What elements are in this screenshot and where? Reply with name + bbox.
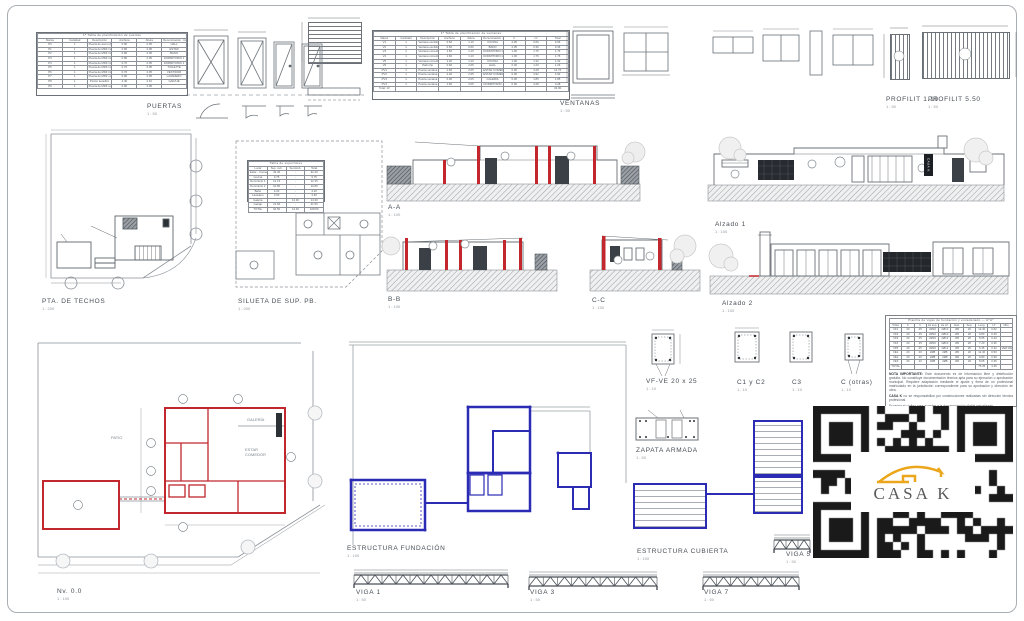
- elevation-2-drawing: [705, 218, 1013, 302]
- section-aa-drawing: [385, 130, 643, 205]
- caption-ventanas: VENTANAS1 : 50: [560, 100, 600, 113]
- foundation-plan-drawing: [343, 333, 633, 547]
- floor-plan-drawing: PATIO GALERÍA ESTAR COMEDOR: [33, 333, 333, 579]
- armado-table-rows: VF120252Ø102Ø10Ø62012.400.62VF220252Ø102…: [890, 328, 1013, 369]
- elevation-1-drawing: [700, 128, 1012, 208]
- column-details-drawing: [640, 326, 880, 378]
- facade-sign: CASA K: [924, 154, 933, 176]
- areas-table-rows: Estar - Comedor32.40-32.40Cocina9.75-9.7…: [249, 171, 324, 212]
- qr-code: CASA K: [813, 406, 1013, 558]
- garage-door-dims: [300, 14, 370, 109]
- note-important: NOTA IMPORTANTE: Este documento es de in…: [889, 372, 1013, 392]
- viga-1-drawing: [350, 568, 512, 590]
- caption-section-cc: C-C1 : 100: [592, 297, 606, 310]
- roof-structure-connector: [705, 493, 753, 495]
- caption-c-otras: C (otras)1 : 10: [841, 379, 873, 392]
- zapata-drawing: [628, 410, 712, 446]
- silhouette-plan-drawing: [228, 131, 390, 299]
- window-fronts-strip: [618, 25, 878, 85]
- puertas-table-rows: P01Puerta de acero (Frentista Básica)0.9…: [38, 43, 187, 89]
- caption-pta-techos: PTA. DE TECHOS1 : 200: [42, 298, 105, 311]
- caption-silueta: SILUETA DE SUP. PB.1 : 200: [238, 298, 317, 311]
- caption-alzado-2: Alzado 21 : 100: [722, 300, 753, 313]
- casa-k-logo-text: CASA K: [874, 484, 953, 504]
- section-bb-drawing: [385, 218, 560, 298]
- facade-sign-text: CASA K: [927, 158, 931, 172]
- viga-5-drawing: [770, 533, 814, 551]
- caption-viga-3: VIGA 31 : 50: [530, 589, 555, 602]
- roof-structure-garage: [633, 483, 707, 529]
- roof-structure-house-bottom: [753, 476, 803, 514]
- caption-c1c2: C1 y C21 : 10: [737, 379, 765, 392]
- profilit-dims: [880, 18, 1020, 88]
- caption-vfve: VF-VE 20 x 251 : 10: [646, 378, 697, 391]
- qr-logo: CASA K: [851, 452, 975, 512]
- caption-section-aa: A-A1 : 100: [388, 204, 401, 217]
- label-comedor: COMEDOR: [245, 452, 266, 457]
- caption-section-bb: B-B1 : 100: [388, 296, 401, 309]
- roof-plan-drawing: [43, 126, 211, 298]
- casa-k-roof-icon: [875, 460, 951, 486]
- caption-nivel-0: Nv. 0.01 : 100: [57, 588, 82, 601]
- caption-profilit-550: PROFILIT 5.501 : 50: [928, 96, 981, 109]
- puertas-schedule-table: 1ª Tabla de planificación de puertas Mar…: [36, 32, 188, 96]
- caption-puertas: PUERTAS1 : 50: [147, 103, 182, 116]
- label-patio: PATIO: [111, 435, 122, 440]
- caption-viga-7: VIGA 71 : 50: [704, 589, 729, 602]
- caption-cubierta: ESTRUCTURA CUBIERTA1 : 100: [637, 548, 728, 561]
- drawing-sheet: 1ª Tabla de planificación de puertas Mar…: [0, 0, 1024, 621]
- ventanas-table-rows: V11Ventana oscilobatiente0.601.10COCINA2…: [374, 41, 569, 92]
- caption-viga-1: VIGA 11 : 50: [356, 589, 381, 602]
- areas-table: Tabla de superficies LocalSup. cub.Semic…: [247, 160, 325, 202]
- caption-zapata: ZAPATA ARMADA1 : 50: [636, 447, 698, 460]
- caption-c3: C31 : 10: [792, 379, 802, 392]
- label-galeria: GALERÍA: [247, 417, 265, 422]
- roof-structure-house-top: [753, 420, 803, 476]
- ventanas-schedule-table: 1ª Tabla de planificación de ventanas Ma…: [372, 30, 570, 100]
- note-liability: CASA K no se responsabiliza por construc…: [889, 394, 1013, 402]
- caption-fundacion: ESTRUCTURA FUNDACIÓN1 : 100: [347, 545, 446, 558]
- caption-alzado-1: Alzado 11 : 100: [715, 221, 746, 234]
- caption-viga-5: VIGA 51 : 50: [786, 551, 811, 564]
- window-elevation-drawing: [565, 25, 623, 105]
- section-cc-drawing: [588, 218, 703, 300]
- notes-panel: Planilla de vigas de fundación y encaden…: [885, 315, 1017, 407]
